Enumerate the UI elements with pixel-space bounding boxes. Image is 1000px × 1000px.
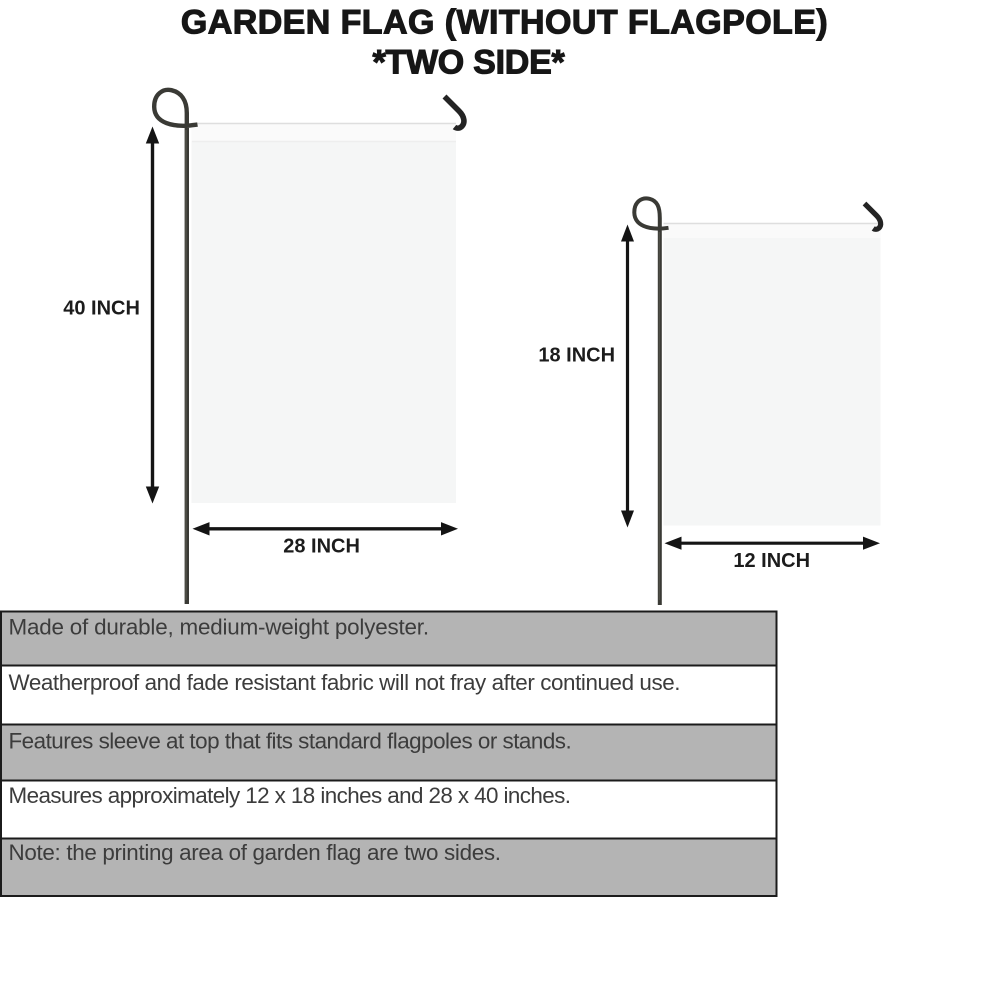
svg-text:18 INCH: 18 INCH [538, 345, 615, 367]
svg-text:Weatherproof and fade resistan: Weatherproof and fade resistant fabric w… [9, 670, 681, 695]
svg-text:Features sleeve at top that fi: Features sleeve at top that fits standar… [9, 729, 572, 754]
svg-text:Note: the printing area of gar: Note: the printing area of garden flag a… [9, 840, 501, 865]
svg-text:Measures approximately 12 x 18: Measures approximately 12 x 18 inches an… [9, 783, 571, 808]
svg-text:GARDEN FLAG (WITHOUT FLAGPOLE): GARDEN FLAG (WITHOUT FLAGPOLE) [181, 4, 828, 42]
svg-text:Made of durable, medium-weight: Made of durable, medium-weight polyester… [9, 615, 429, 640]
svg-text:*TWO SIDE*: *TWO SIDE* [372, 44, 565, 82]
svg-text:12 INCH: 12 INCH [733, 550, 810, 572]
svg-text:28 INCH: 28 INCH [283, 536, 360, 558]
svg-text:40 INCH: 40 INCH [63, 298, 140, 320]
